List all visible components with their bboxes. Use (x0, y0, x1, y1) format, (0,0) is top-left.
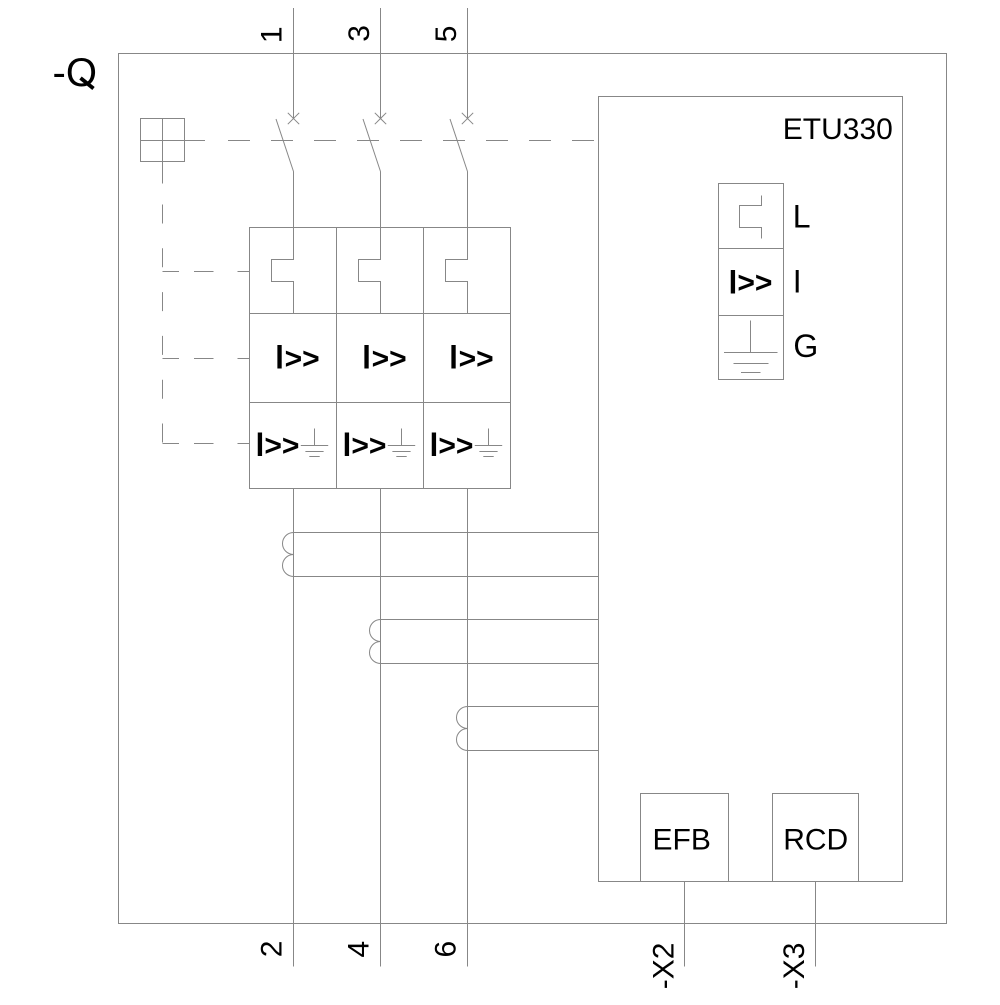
svg-text:ETU330: ETU330 (783, 113, 893, 146)
svg-text:G: G (793, 328, 818, 364)
svg-text:I: I (793, 263, 802, 299)
svg-text:I: I (256, 425, 264, 463)
svg-text:-X2: -X2 (648, 943, 681, 990)
svg-text:I: I (275, 338, 283, 376)
svg-text:EFB: EFB (653, 823, 711, 856)
svg-text:5: 5 (430, 26, 463, 43)
svg-text:>>: >> (285, 342, 320, 375)
svg-text:I: I (729, 263, 737, 301)
svg-text:6: 6 (430, 941, 463, 958)
svg-text:I: I (343, 425, 351, 463)
svg-text:L: L (793, 199, 811, 235)
svg-text:I: I (430, 425, 438, 463)
svg-text:>>: >> (438, 430, 473, 463)
svg-text:I: I (362, 338, 370, 376)
svg-text:>>: >> (459, 342, 494, 375)
svg-text:RCD: RCD (783, 823, 848, 856)
svg-text:>>: >> (351, 430, 386, 463)
svg-text:>>: >> (372, 342, 407, 375)
svg-text:-X3: -X3 (778, 943, 811, 990)
svg-text:2: 2 (256, 941, 289, 958)
svg-text:3: 3 (343, 25, 376, 42)
svg-text:1: 1 (256, 26, 289, 43)
svg-text:>>: >> (264, 430, 299, 463)
svg-text:4: 4 (343, 941, 376, 958)
svg-text:>>: >> (737, 266, 772, 299)
svg-text:I: I (449, 338, 457, 376)
